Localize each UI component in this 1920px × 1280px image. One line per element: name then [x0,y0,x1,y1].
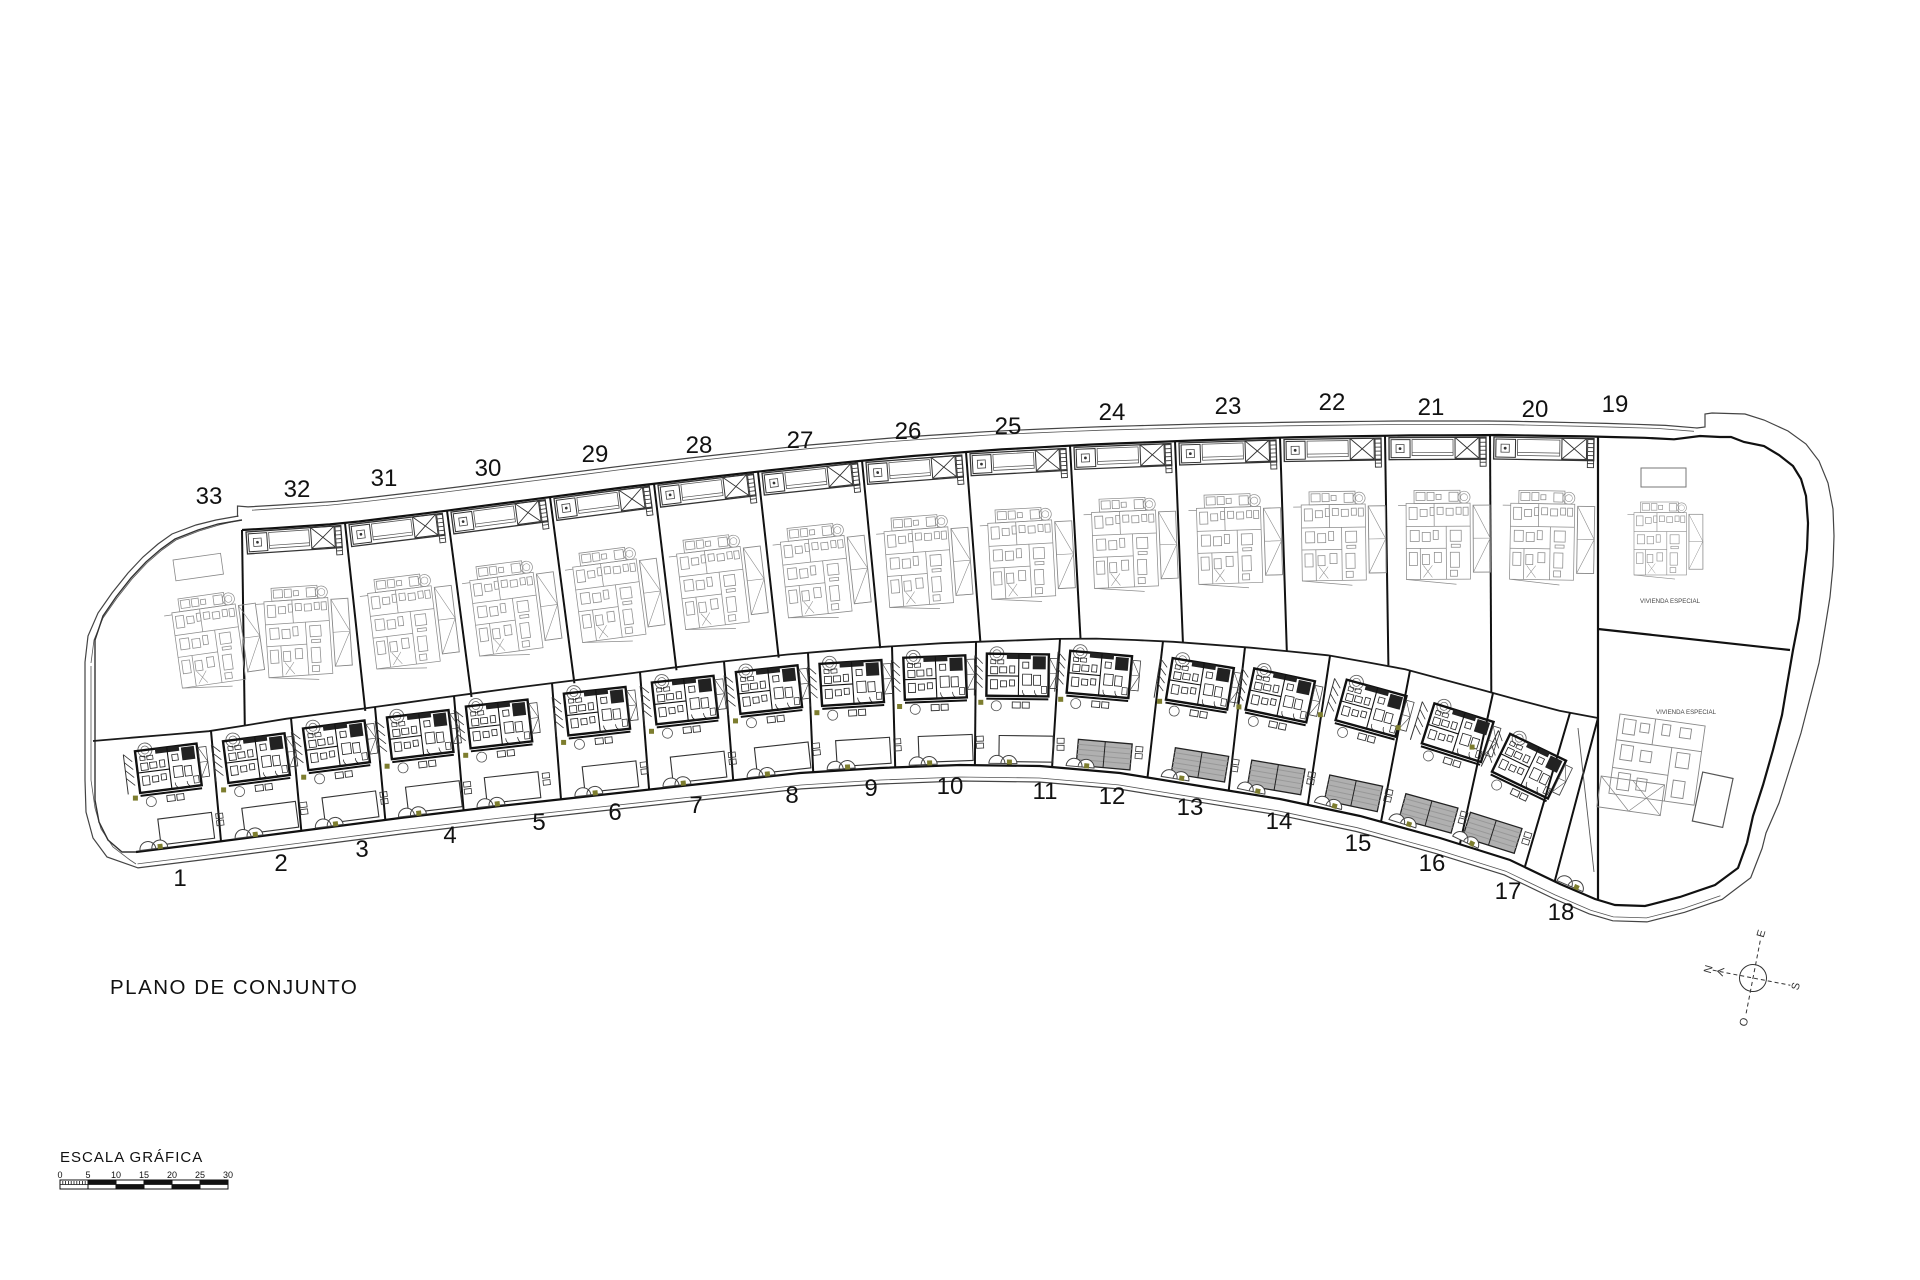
svg-text:14: 14 [1266,808,1293,835]
svg-text:5: 5 [85,1170,90,1180]
svg-text:N: N [1702,964,1716,975]
svg-text:22: 22 [1319,389,1346,416]
svg-text:31: 31 [371,465,398,492]
svg-text:2: 2 [274,850,287,877]
svg-text:27: 27 [787,427,814,454]
svg-text:10: 10 [111,1170,121,1180]
svg-text:5: 5 [532,809,545,836]
svg-text:8: 8 [785,782,798,809]
svg-text:1: 1 [173,865,186,892]
svg-text:25: 25 [195,1170,205,1180]
svg-text:4: 4 [443,822,456,849]
svg-text:0: 0 [57,1170,62,1180]
svg-text:ESCALA GRÁFICA: ESCALA GRÁFICA [60,1149,203,1166]
svg-text:11: 11 [1033,778,1058,805]
svg-text:19: 19 [1602,391,1629,418]
svg-text:30: 30 [475,455,502,482]
svg-text:18: 18 [1548,899,1575,926]
svg-text:21: 21 [1418,394,1445,421]
svg-text:29: 29 [582,441,609,468]
svg-text:10: 10 [937,773,964,800]
svg-text:VIVIENDA ESPECIAL: VIVIENDA ESPECIAL [1656,709,1716,716]
svg-text:13: 13 [1177,794,1204,821]
svg-text:E: E [1755,929,1769,939]
svg-text:24: 24 [1099,399,1126,426]
svg-text:17: 17 [1495,878,1522,905]
svg-text:28: 28 [686,432,713,459]
svg-text:20: 20 [1522,396,1549,423]
svg-text:15: 15 [139,1170,149,1180]
svg-text:32: 32 [284,476,311,503]
svg-text:VIVIENDA ESPECIAL: VIVIENDA ESPECIAL [1640,598,1700,605]
svg-text:33: 33 [196,483,223,510]
svg-text:23: 23 [1215,393,1242,420]
svg-text:25: 25 [995,413,1022,440]
svg-text:20: 20 [167,1170,177,1180]
svg-text:7: 7 [689,792,702,819]
svg-text:S: S [1789,981,1803,991]
svg-text:6: 6 [608,799,621,826]
svg-text:O: O [1737,1016,1751,1028]
svg-text:PLANO DE CONJUNTO: PLANO DE CONJUNTO [110,976,358,999]
svg-text:9: 9 [864,775,877,802]
svg-text:26: 26 [895,418,922,445]
svg-text:15: 15 [1345,830,1372,857]
svg-text:16: 16 [1419,850,1446,877]
svg-text:30: 30 [223,1170,233,1180]
svg-text:12: 12 [1099,783,1126,810]
svg-text:3: 3 [355,836,368,863]
